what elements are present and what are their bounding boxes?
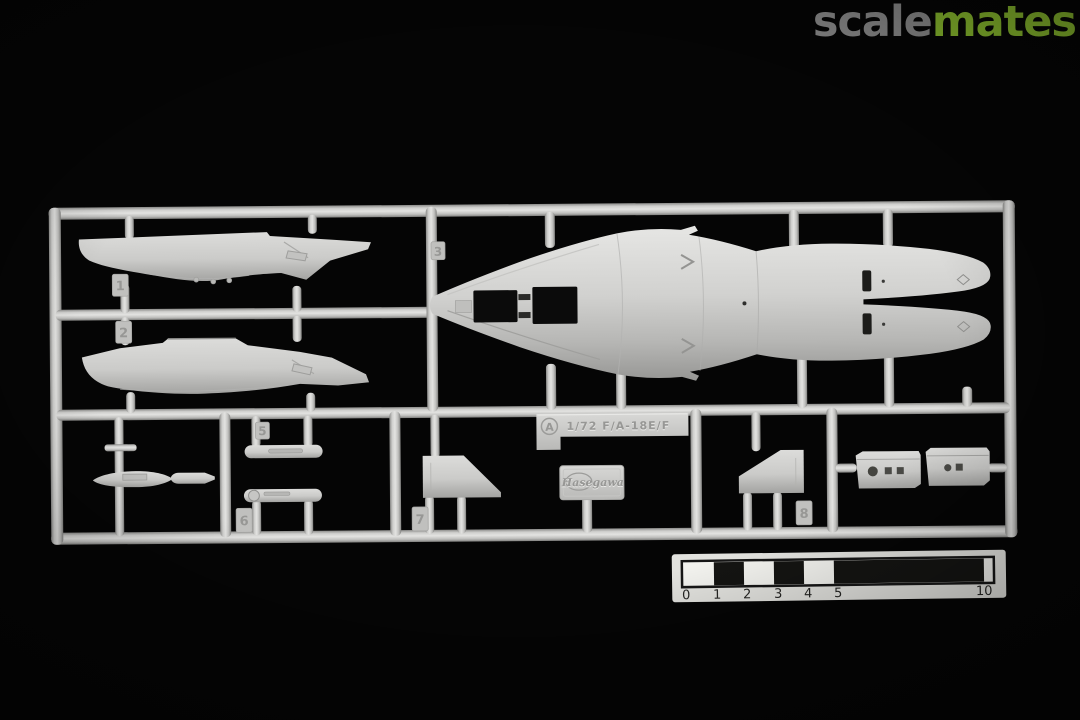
- fuselage-half-part-2: [82, 337, 369, 394]
- photo-background: scalemates: [0, 0, 1080, 720]
- part-number-tag-1: 1: [112, 274, 128, 296]
- svg-text:2: 2: [119, 326, 128, 341]
- scale-ruler: 0 1 2 3 4 5 10: [672, 550, 1007, 604]
- brand-plate: Hasegawa Hasegawa: [560, 465, 624, 500]
- ruler-label: 2: [743, 587, 751, 602]
- marking-tag: A 1/72 F/A-18E/F 1/72 F/A-18E/F: [536, 413, 688, 450]
- drop-tank-part: [93, 471, 173, 488]
- svg-text:7: 7: [416, 513, 425, 528]
- part-number-tag-5: 5: [255, 422, 269, 439]
- ruler-label: 10: [976, 584, 993, 599]
- cylindrical-part-2: [244, 489, 322, 503]
- ruler-label: 1: [713, 588, 721, 603]
- svg-text:1: 1: [116, 279, 125, 294]
- ruler-label: 4: [804, 586, 812, 601]
- stabilator-part-right: [739, 450, 804, 494]
- ruler-label: 5: [834, 586, 842, 601]
- cylindrical-part-1: [245, 445, 323, 459]
- sprue-photo: A 1/72 F/A-18E/F 1/72 F/A-18E/F Hasegawa…: [0, 0, 1080, 720]
- intake-duct-part-1: [856, 451, 921, 489]
- ruler-label: 3: [774, 587, 782, 602]
- part-number-tag-8: 8: [796, 501, 812, 525]
- tank-nose-part: [171, 473, 215, 484]
- svg-text:6: 6: [240, 514, 249, 529]
- intake-duct-part-2: [926, 447, 990, 486]
- marking-scale-text: 1/72 F/A-18E/F: [566, 419, 670, 433]
- part-number-tag-2: 2: [116, 321, 132, 343]
- svg-text:3: 3: [434, 245, 442, 259]
- part-number-tag-6: 6: [236, 508, 252, 532]
- part-number-tag-3: 3: [431, 242, 445, 260]
- ruler-label: 0: [682, 588, 690, 603]
- part-number-tag-7: 7: [412, 507, 428, 531]
- svg-text:5: 5: [258, 424, 266, 438]
- svg-text:8: 8: [800, 507, 809, 522]
- stabilator-part-left: [423, 455, 501, 498]
- brand-plate-text: Hasegawa: [561, 476, 624, 489]
- letter-badge-text: A: [545, 421, 554, 434]
- upper-fuselage-part: [429, 223, 991, 382]
